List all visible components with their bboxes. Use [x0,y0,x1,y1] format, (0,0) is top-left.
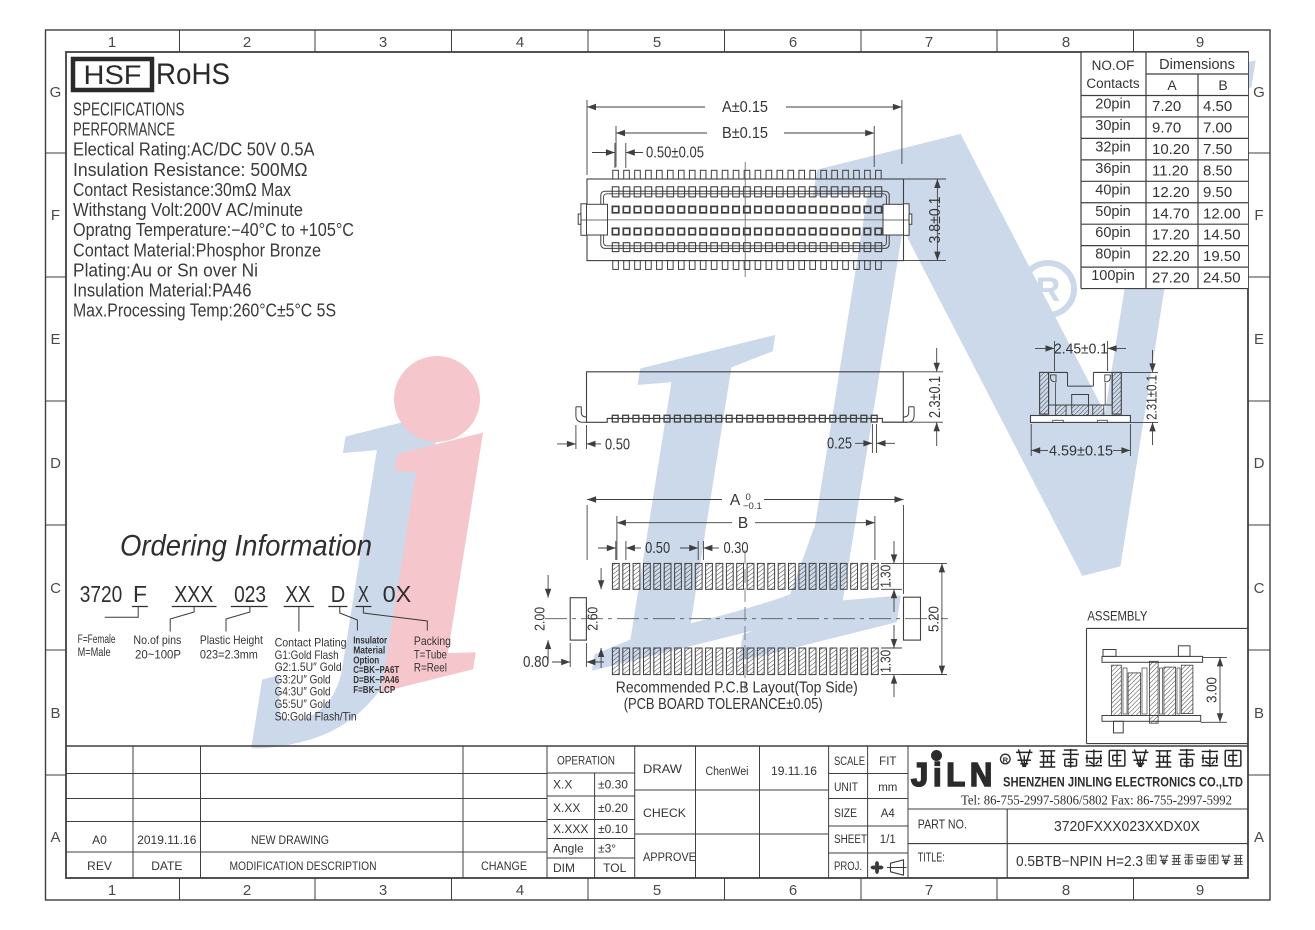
svg-text:Packing: Packing [414,634,451,648]
svg-text:5: 5 [653,882,661,899]
svg-text:Dimensions: Dimensions [1159,57,1235,73]
svg-text:D: D [50,455,61,472]
svg-text:12.00: 12.00 [1203,205,1241,222]
svg-text:OPERATION: OPERATION [557,756,615,768]
svg-text:2: 2 [243,882,251,899]
svg-text:A: A [1254,829,1264,846]
svg-text:HSF: HSF [84,60,142,90]
svg-text:CHECK: CHECK [643,806,686,820]
svg-text:1: 1 [108,882,116,899]
svg-text:40pin: 40pin [1095,182,1130,198]
svg-text:F: F [133,581,147,607]
svg-text:023=2.3mm: 023=2.3mm [200,648,258,662]
svg-text:19.50: 19.50 [1203,248,1241,265]
svg-text:No.of pins: No.of pins [133,633,181,647]
svg-text:7.00: 7.00 [1203,119,1232,136]
svg-text:0.30: 0.30 [724,540,749,557]
svg-text:R=Reel: R=Reel [414,661,447,675]
svg-text:±0.30: ±0.30 [598,778,628,792]
svg-text:2.3±0.1: 2.3±0.1 [927,376,944,418]
svg-text:SPECIFICATIONS: SPECIFICATIONS [73,100,185,120]
svg-text:F=Female: F=Female [78,634,116,646]
svg-text:5: 5 [653,34,661,51]
svg-text:1.30: 1.30 [879,650,895,673]
svg-text:24.50: 24.50 [1203,270,1241,287]
svg-text:PERFORMANCE: PERFORMANCE [73,120,175,140]
svg-text:3: 3 [379,34,387,51]
svg-text:4.50: 4.50 [1203,98,1232,115]
svg-text:Withstang Volt:200V AC/minut: Withstang Volt:200V AC/minute [73,200,303,220]
svg-text:mm: mm [878,782,897,794]
svg-text:0X: 0X [383,581,412,607]
svg-text:R: R [1036,271,1061,309]
svg-text:1/1: 1/1 [880,834,896,846]
svg-text:Recommended P.C.B Layout(Top: Recommended P.C.B Layout(Top Side) [616,680,858,697]
svg-text:8: 8 [1062,882,1070,899]
svg-text:0.80: 0.80 [523,654,549,671]
svg-text:3.8±0.1: 3.8±0.1 [927,197,944,244]
svg-text:±3°: ±3° [598,841,616,855]
svg-text:B: B [1218,77,1227,93]
svg-text:X.XXX: X.XXX [553,822,588,836]
svg-text:±0.20: ±0.20 [598,801,628,815]
svg-text:G: G [50,84,62,101]
svg-text:3.00: 3.00 [1205,677,1221,703]
svg-text:2019.11.16: 2019.11.16 [137,833,196,847]
svg-text:27.20: 27.20 [1152,270,1190,287]
svg-text:CHANGE: CHANGE [481,859,527,873]
svg-text:Electical Rating:AC/DC 50V: Electical Rating:AC/DC 50V 0.5A [73,140,315,160]
svg-text:B±0.15: B±0.15 [722,125,768,142]
svg-text:20pin: 20pin [1095,97,1130,113]
svg-text:G: G [1253,84,1265,101]
svg-text:C: C [50,580,61,597]
svg-text:X: X [358,581,369,607]
svg-text:Opratng Temperature:−40°C to: Opratng Temperature:−40°C to +105°C [73,220,354,240]
svg-text:14.70: 14.70 [1152,205,1190,222]
svg-text:F=BK−LCP: F=BK−LCP [353,685,395,696]
svg-text:2: 2 [243,34,251,51]
svg-text:T=Tube: T=Tube [414,648,447,662]
svg-text:E: E [1254,331,1264,348]
svg-text:SCALE: SCALE [834,756,865,768]
svg-text:9: 9 [1196,34,1204,51]
svg-text:2.45±0.1: 2.45±0.1 [1054,340,1108,357]
svg-text:Insulation Material:PA46: Insulation Material:PA46 [73,281,252,301]
svg-text:PROJ.: PROJ. [834,861,862,873]
svg-text:A: A [50,829,60,846]
svg-text:Angle: Angle [553,841,584,855]
svg-text:5.20: 5.20 [926,606,942,632]
svg-text:0.50: 0.50 [645,540,670,557]
svg-text:S0:Gold Flash/Tin: S0:Gold Flash/Tin [275,709,357,723]
svg-text:B: B [1254,705,1264,722]
svg-text:1.30: 1.30 [879,565,895,588]
svg-text:Contact Resistance:30mΩ Max: Contact Resistance:30mΩ Max [73,180,291,200]
svg-text:A4: A4 [881,808,896,820]
svg-text:32pin: 32pin [1095,139,1130,155]
svg-text:36pin: 36pin [1095,161,1130,177]
svg-text:X.X: X.X [553,778,572,792]
svg-text:9: 9 [1196,882,1204,899]
svg-text:JiLN: JiLN [911,756,997,793]
svg-text:7.20: 7.20 [1152,98,1181,115]
svg-text:TOL: TOL [603,861,626,875]
svg-text:SHENZHEN JINLING ELECTRONICS C: SHENZHEN JINLING ELECTRONICS CO.,LTD [1003,775,1243,790]
svg-text:3720: 3720 [80,581,123,607]
svg-text:NEW DRAWING: NEW DRAWING [251,833,329,847]
svg-text:UNIT: UNIT [834,782,858,794]
svg-text:B: B [50,705,60,722]
svg-text:ASSEMBLY: ASSEMBLY [1087,609,1147,624]
svg-text:REV: REV [87,859,112,873]
svg-text:(PCB BOARD TOLERANCE±0.05): (PCB BOARD TOLERANCE±0.05) [624,696,823,713]
svg-text:7: 7 [925,882,933,899]
svg-text:3720FXXX023XXDX0X: 3720FXXX023XXDX0X [1054,819,1200,835]
svg-text:9.50: 9.50 [1203,184,1232,201]
svg-text:023: 023 [234,581,266,607]
svg-text:B: B [738,515,748,532]
svg-text:Ordering Information: Ordering Information [120,530,372,563]
svg-text:XX: XX [285,581,311,607]
svg-text:14.50: 14.50 [1203,227,1241,244]
svg-text:0.5BTB−NPIN H=2.3: 0.5BTB−NPIN H=2.3 [1016,854,1143,870]
svg-text:R: R [1003,756,1009,765]
svg-text:2.31±0.1: 2.31±0.1 [1144,375,1161,420]
svg-text:22.20: 22.20 [1152,248,1190,265]
svg-text:Insulation Resistance: 500: Insulation Resistance: 500MΩ [73,160,308,180]
svg-text:20~100P: 20~100P [135,648,181,662]
svg-text:0.25: 0.25 [827,436,852,453]
svg-text:8: 8 [1062,34,1070,51]
svg-text:4: 4 [516,34,524,51]
svg-text:Plastic Height: Plastic Height [200,633,264,647]
svg-text:DIM: DIM [553,861,575,875]
svg-text:100pin: 100pin [1091,268,1135,284]
svg-text:Contact Material:Phosphor Br: Contact Material:Phosphor Bronze [73,240,321,260]
svg-text:M=Male: M=Male [78,647,111,659]
svg-text:4: 4 [516,882,524,899]
svg-text:A0: A0 [92,833,107,847]
svg-text:19.11.16: 19.11.16 [771,764,817,778]
svg-text:0.50±0.05: 0.50±0.05 [646,145,704,162]
svg-text:6: 6 [789,34,797,51]
svg-text:XXX: XXX [174,581,213,607]
svg-text:ı: ı [370,207,503,806]
svg-text:C: C [1254,580,1265,597]
svg-text:±0.10: ±0.10 [598,822,628,836]
svg-text:2.60: 2.60 [586,607,602,631]
svg-text:PART NO.: PART NO. [918,818,967,832]
svg-text:11.20: 11.20 [1152,162,1188,179]
svg-text:1: 1 [108,34,116,51]
svg-text:3: 3 [379,882,387,899]
svg-text:Max.Processing Temp:260°C±5°C: Max.Processing Temp:260°C±5°C 5S [73,301,336,321]
svg-text:8.50: 8.50 [1203,162,1232,179]
svg-text:30pin: 30pin [1095,118,1130,134]
svg-text:6: 6 [789,882,797,899]
svg-text:SHEET: SHEET [834,834,867,846]
svg-text:9.70: 9.70 [1152,119,1181,136]
svg-text:80pin: 80pin [1095,247,1130,263]
svg-text:4.59±0.15: 4.59±0.15 [1049,442,1113,459]
svg-text:Contacts: Contacts [1086,76,1140,91]
svg-text:FIT: FIT [879,756,896,768]
svg-text:RoHS: RoHS [156,58,230,91]
svg-text:X.XX: X.XX [553,801,580,815]
svg-text:Tel: 86-755-2997-5806/5802 Fa: Tel: 86-755-2997-5806/5802 Fax: 86-755-2… [961,793,1232,808]
svg-text:DRAW: DRAW [643,762,683,776]
svg-text:SIZE: SIZE [834,808,857,820]
svg-text:F: F [51,207,60,224]
svg-text:0.50: 0.50 [605,436,630,453]
svg-text:NO.OF: NO.OF [1092,58,1135,73]
svg-text:D: D [331,581,346,607]
svg-text:17.20: 17.20 [1152,227,1190,244]
svg-text:10.20: 10.20 [1152,141,1190,158]
svg-text:−0.1: −0.1 [743,501,762,512]
svg-text:A: A [1167,77,1177,93]
svg-text:A±0.15: A±0.15 [722,99,768,116]
svg-text:Plating:Au or Sn over Ni: Plating:Au or Sn over Ni [73,260,258,280]
svg-text:7.50: 7.50 [1203,141,1232,158]
svg-text:2.00: 2.00 [533,607,549,631]
svg-text:APPROVE: APPROVE [643,850,696,864]
svg-text:F: F [1254,207,1263,224]
svg-text:7: 7 [925,34,933,51]
svg-text:D: D [1254,455,1265,472]
svg-text:60pin: 60pin [1095,225,1130,241]
svg-text:A: A [730,492,741,509]
svg-text:12.20: 12.20 [1152,184,1190,201]
svg-text:MODIFICATION DESCRIPTION: MODIFICATION DESCRIPTION [230,859,377,873]
svg-text:50pin: 50pin [1095,204,1130,220]
svg-text:TITLE:: TITLE: [918,851,945,865]
svg-text:ChenWei: ChenWei [706,764,749,778]
svg-text:DATE: DATE [151,859,182,873]
svg-text:E: E [50,331,60,348]
